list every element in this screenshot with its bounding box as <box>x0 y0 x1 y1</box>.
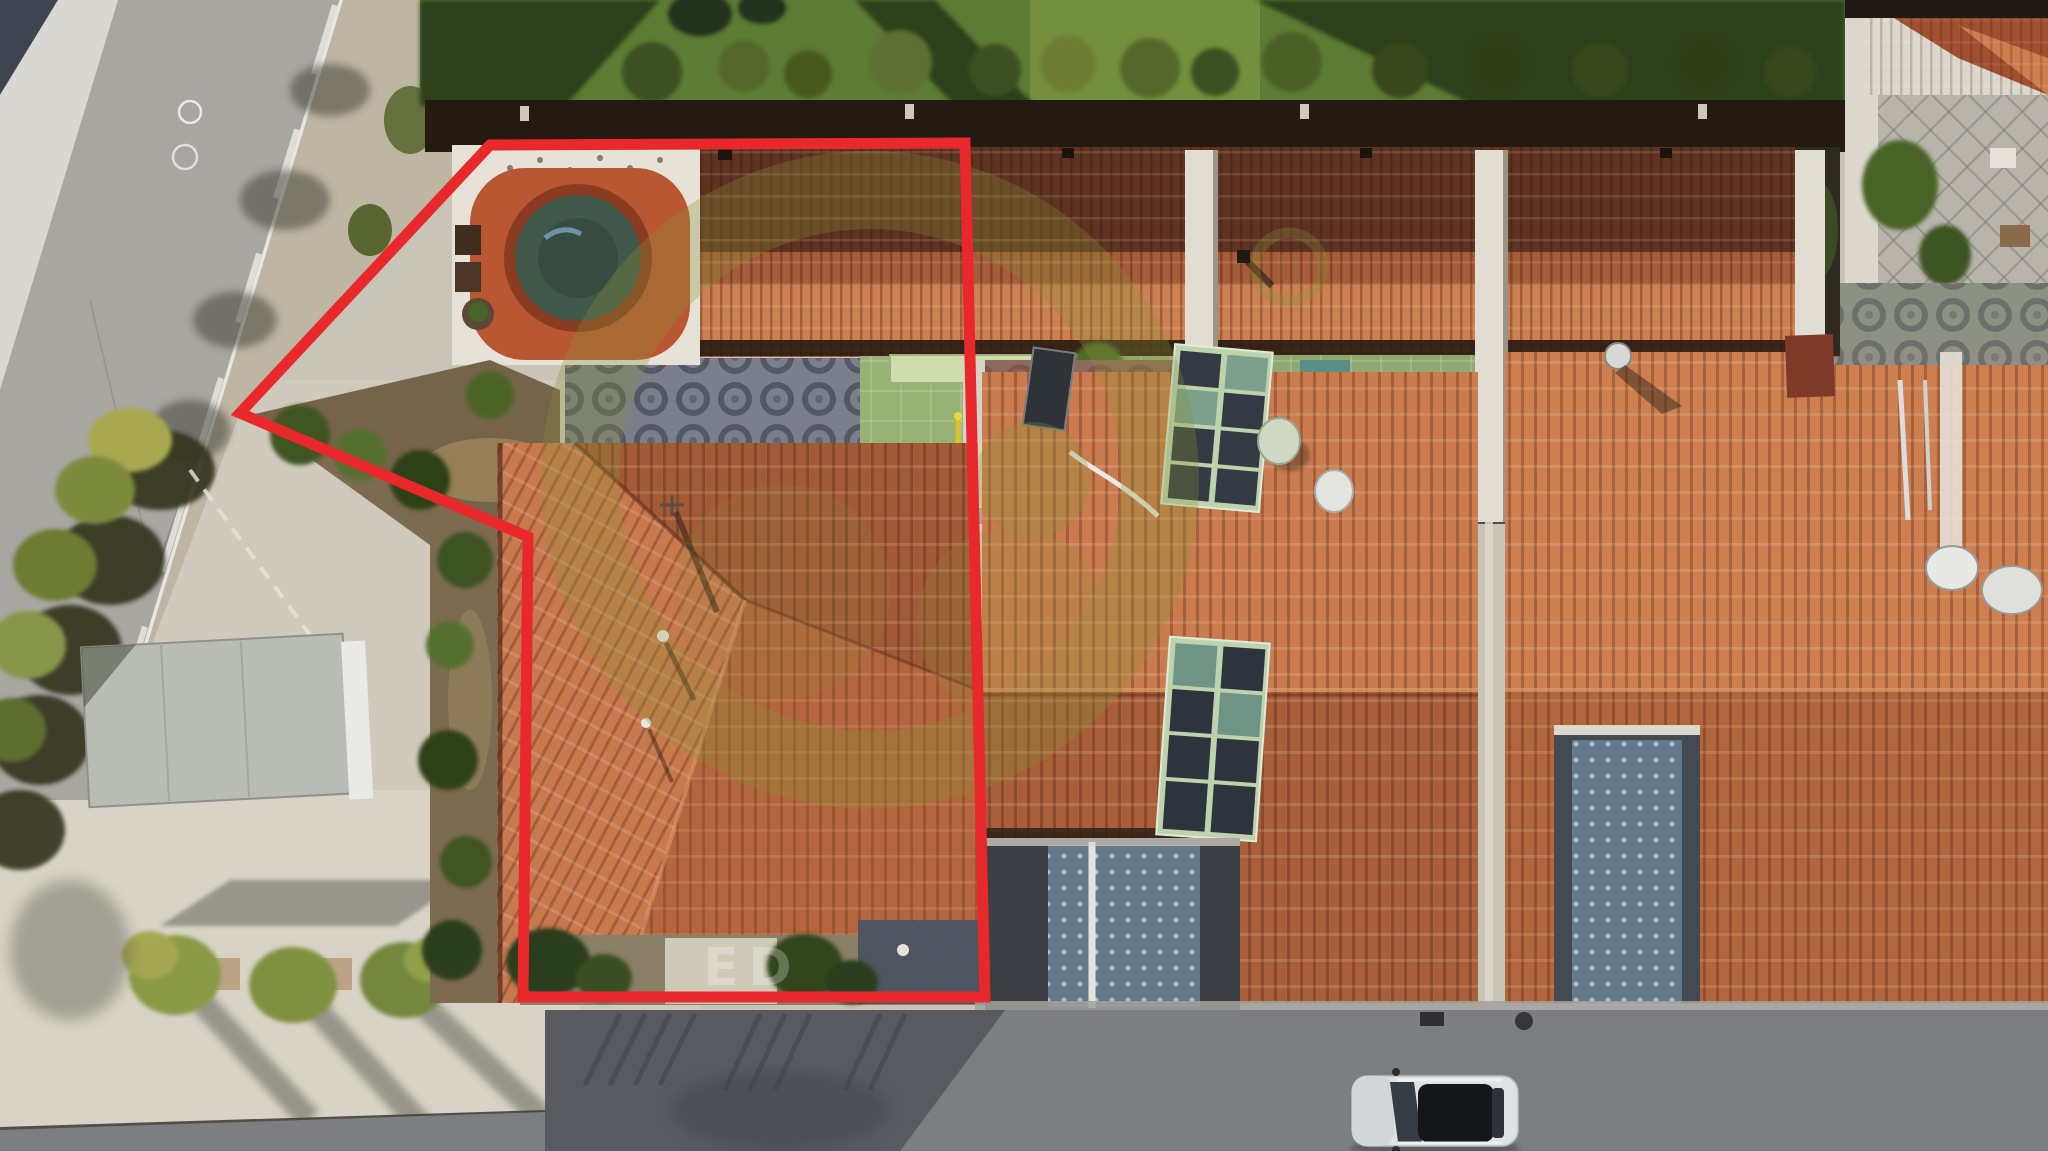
solar-array-lower <box>1156 637 1270 841</box>
parked-car <box>1350 1068 1520 1151</box>
car-rear-window <box>1492 1088 1504 1138</box>
drain <box>1420 1012 1444 1026</box>
aerial-photo: ED <box>0 0 2048 1151</box>
azulejo-wall <box>1572 740 1682 1003</box>
dark-dormer-roof <box>1785 334 1835 398</box>
tree-shadow-on-street <box>670 1070 890 1150</box>
watermark-text: ED <box>703 938 802 998</box>
right-main-roof <box>1489 334 2048 1003</box>
curb-line <box>975 1001 2048 1010</box>
terrace-furniture <box>1990 148 2016 168</box>
satellite-dish <box>1315 470 1353 512</box>
top-right-house <box>1824 0 2048 365</box>
car-panoramic-roof <box>1418 1084 1494 1142</box>
recessed-courtyard <box>1554 725 1700 1003</box>
car-mirror <box>1392 1068 1400 1076</box>
ridge-wall <box>1940 352 1962 562</box>
satellite-dish <box>1258 418 1300 464</box>
metal-chimney <box>1605 343 1631 369</box>
sun-lounger <box>455 262 481 292</box>
azulejo-wall <box>1048 845 1200 1007</box>
manhole <box>1515 1012 1533 1030</box>
sun-lounger <box>455 225 481 255</box>
back-garden-lawn <box>420 0 1845 106</box>
tree-shadow-blob <box>10 880 130 1020</box>
satellite-dish <box>1982 566 2042 614</box>
aerial-photo-svg: ED <box>0 0 2048 1151</box>
satellite-dish <box>1926 546 1978 590</box>
middle-front-recess <box>985 838 1240 1010</box>
